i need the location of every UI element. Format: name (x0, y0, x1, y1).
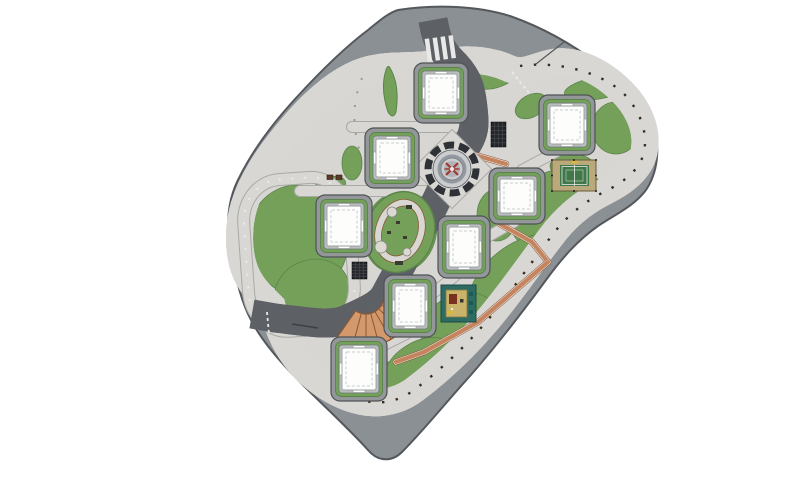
masterplan-drawing (0, 0, 800, 480)
play-block (396, 221, 400, 224)
play-circle (375, 241, 387, 253)
kids-court (441, 285, 476, 322)
play-circle (387, 207, 397, 217)
fence-post (595, 190, 597, 192)
building-block-7 (384, 275, 436, 337)
building-block-3 (539, 95, 595, 155)
building-roof (342, 348, 376, 390)
building-roof (327, 206, 361, 246)
fence-post (573, 159, 575, 161)
court-bench (572, 161, 578, 164)
fence-post (595, 159, 597, 161)
lawn-patch (342, 146, 362, 180)
building-block-8 (331, 337, 387, 401)
building-block-2 (365, 128, 419, 188)
play-block (403, 236, 407, 239)
play-structure (449, 294, 457, 304)
site-plan-canvas (0, 0, 800, 480)
fence-post (551, 175, 553, 177)
play-block (387, 231, 391, 234)
building-block-1 (414, 63, 468, 123)
fence-post (551, 159, 553, 161)
building-roof (550, 106, 584, 144)
building-roof (500, 179, 534, 213)
bench (336, 175, 342, 180)
building-block-5 (316, 195, 372, 257)
utility-grate (352, 262, 367, 279)
play-block (395, 261, 403, 265)
building-block-4 (489, 168, 545, 224)
building-roof (425, 74, 457, 112)
building-roof (376, 139, 408, 177)
fence-post (551, 190, 553, 192)
play-block (406, 205, 412, 209)
play-circle (403, 248, 411, 256)
fence-post (595, 175, 597, 177)
utility-grate (491, 122, 506, 147)
building-block-6 (438, 216, 490, 278)
fence-post (573, 190, 575, 192)
tennis-court (551, 159, 597, 192)
bench (327, 175, 333, 180)
